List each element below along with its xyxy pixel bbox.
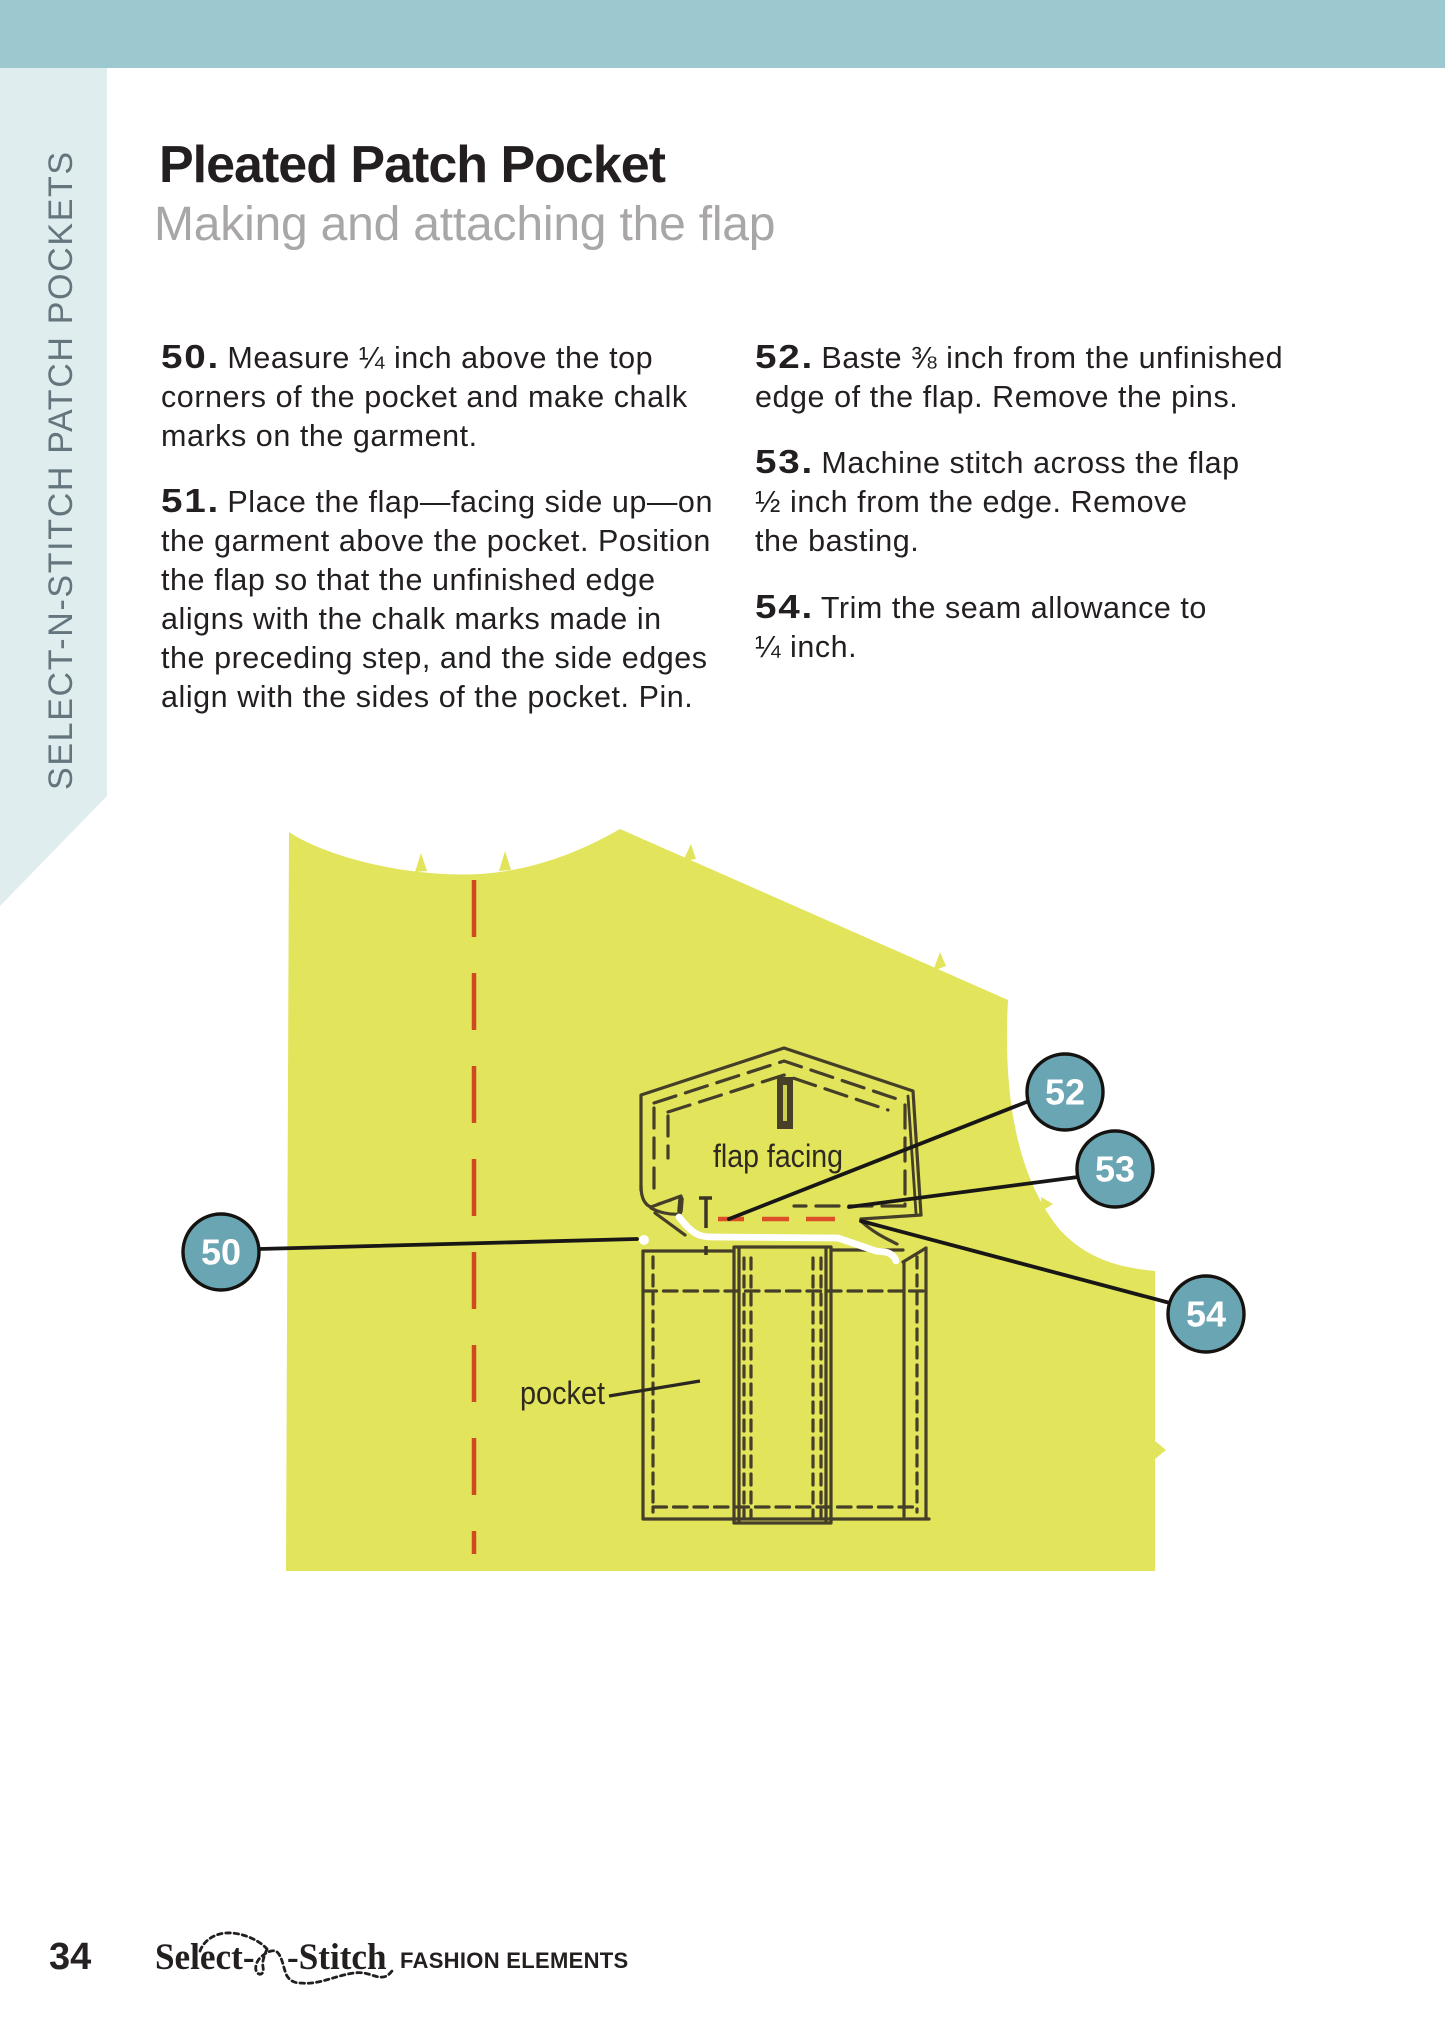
- svg-text:52: 52: [1045, 1072, 1085, 1113]
- svg-text:53: 53: [1095, 1149, 1135, 1190]
- svg-text:54: 54: [1186, 1294, 1226, 1335]
- svg-text:50: 50: [201, 1232, 241, 1273]
- svg-text:pocket: pocket: [520, 1375, 605, 1411]
- svg-text:flap facing: flap facing: [713, 1138, 843, 1174]
